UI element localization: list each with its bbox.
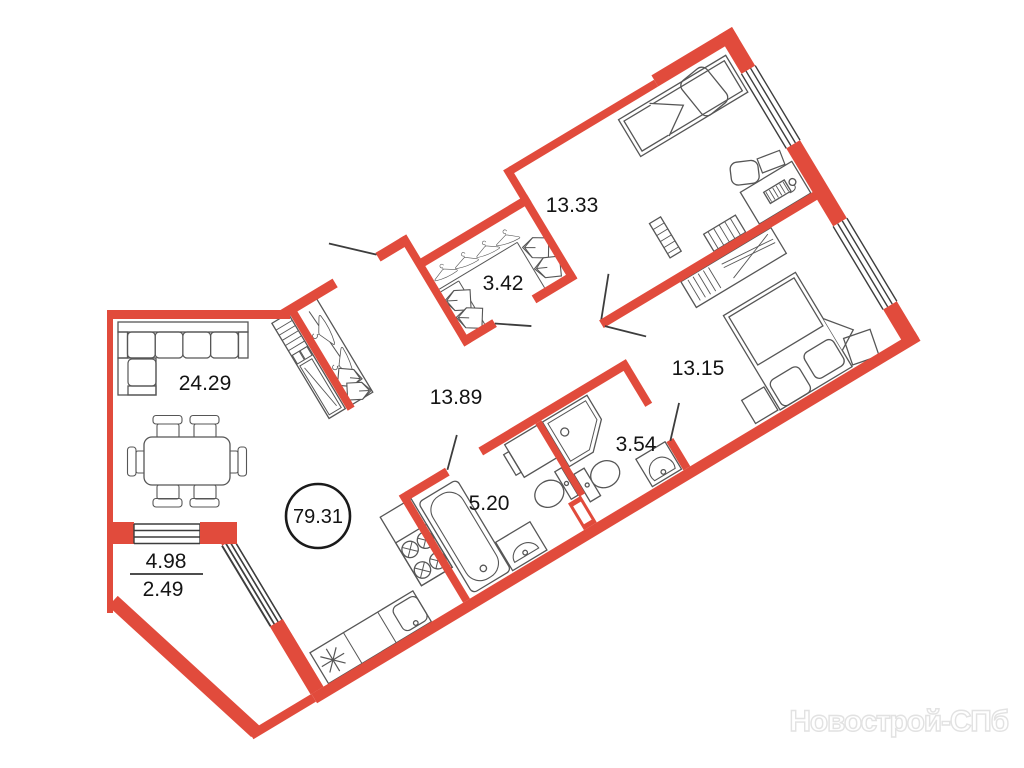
svg-text:13.89: 13.89 xyxy=(430,386,483,409)
svg-text:2.49: 2.49 xyxy=(143,578,184,601)
svg-text:4.98: 4.98 xyxy=(146,550,187,573)
svg-text:Новострой-СПб: Новострой-СПб xyxy=(789,705,1008,738)
svg-text:79.31: 79.31 xyxy=(293,506,343,528)
svg-text:5.20: 5.20 xyxy=(469,492,510,515)
svg-text:13.15: 13.15 xyxy=(672,357,725,380)
svg-text:3.54: 3.54 xyxy=(616,433,657,456)
svg-text:3.42: 3.42 xyxy=(483,272,524,295)
svg-text:24.29: 24.29 xyxy=(179,372,232,395)
svg-text:13.33: 13.33 xyxy=(546,194,599,217)
